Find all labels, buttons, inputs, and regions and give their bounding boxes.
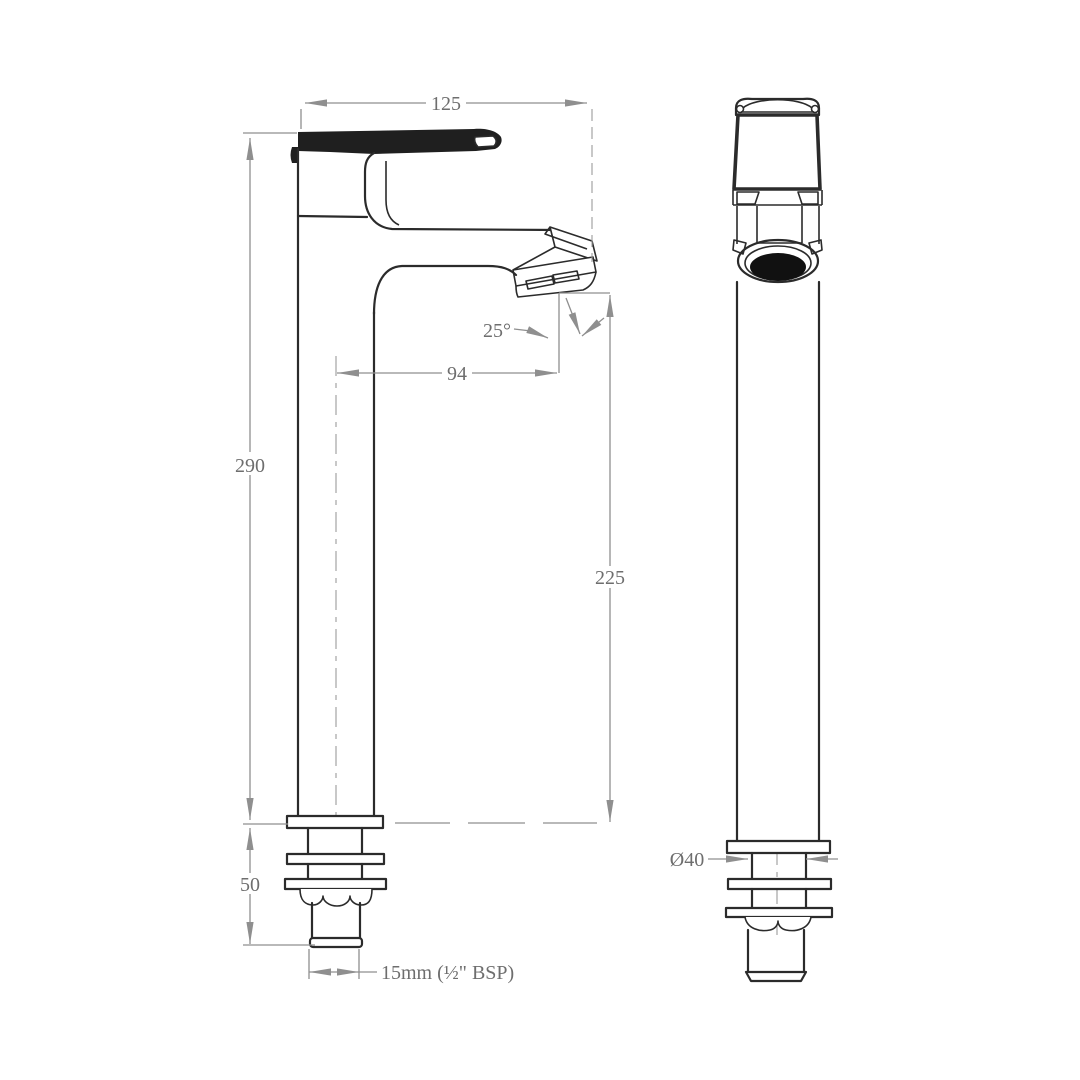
dim-label-dia40: Ø40 (670, 849, 704, 871)
base-flange (287, 816, 383, 828)
base-washer-2 (285, 879, 386, 889)
front-base-flange (727, 841, 830, 853)
handle-lever (298, 129, 502, 154)
dim-label-25deg: 25° (483, 320, 511, 342)
spout-tab-left (733, 240, 746, 254)
angle-leader (514, 329, 548, 338)
front-washer-1 (728, 879, 831, 889)
dim-label-225: 225 (595, 567, 625, 589)
handle-front (734, 115, 820, 189)
front-washer-2 (726, 908, 832, 917)
dim-body-height: 290 (231, 133, 297, 820)
dim-spout-angle: 25° (483, 298, 604, 342)
handle-neck-inner (386, 161, 399, 225)
front-nut (745, 917, 811, 931)
dim-label-290: 290 (235, 455, 265, 477)
dim-label-125: 125 (431, 93, 461, 115)
spout-body-front (737, 206, 819, 244)
faucet-drawing: 125 290 94 225 25° (0, 0, 1080, 1080)
base-washer-1 (287, 854, 384, 864)
handle-neck-outer (365, 153, 558, 230)
angle-arrow-left (566, 298, 580, 334)
body-top-line (298, 216, 367, 217)
front-view (726, 99, 832, 981)
dim-label-50: 50 (240, 874, 260, 896)
dim-overall-width: 125 (301, 92, 592, 262)
angle-arrow-right (582, 318, 604, 336)
thread-pipe-cap (310, 938, 362, 947)
dim-spout-reach: 94 (337, 293, 559, 385)
side-view (285, 129, 597, 947)
base-nut (300, 889, 372, 906)
body-shoulder (374, 266, 516, 314)
handle-side-bump (291, 147, 299, 163)
collar-notch-right (798, 192, 818, 204)
spout-outlet-aerator (750, 253, 806, 281)
collar-notch-left (737, 192, 759, 204)
dim-label-thread: 15mm (½" BSP) (381, 962, 514, 984)
handle-tip-detail (475, 136, 497, 147)
technical-drawing-canvas: 125 290 94 225 25° (0, 0, 1080, 1080)
dim-thread-size: 15mm (½" BSP) (309, 949, 514, 984)
front-pipe-cap (746, 972, 806, 981)
dim-label-94: 94 (447, 363, 467, 385)
